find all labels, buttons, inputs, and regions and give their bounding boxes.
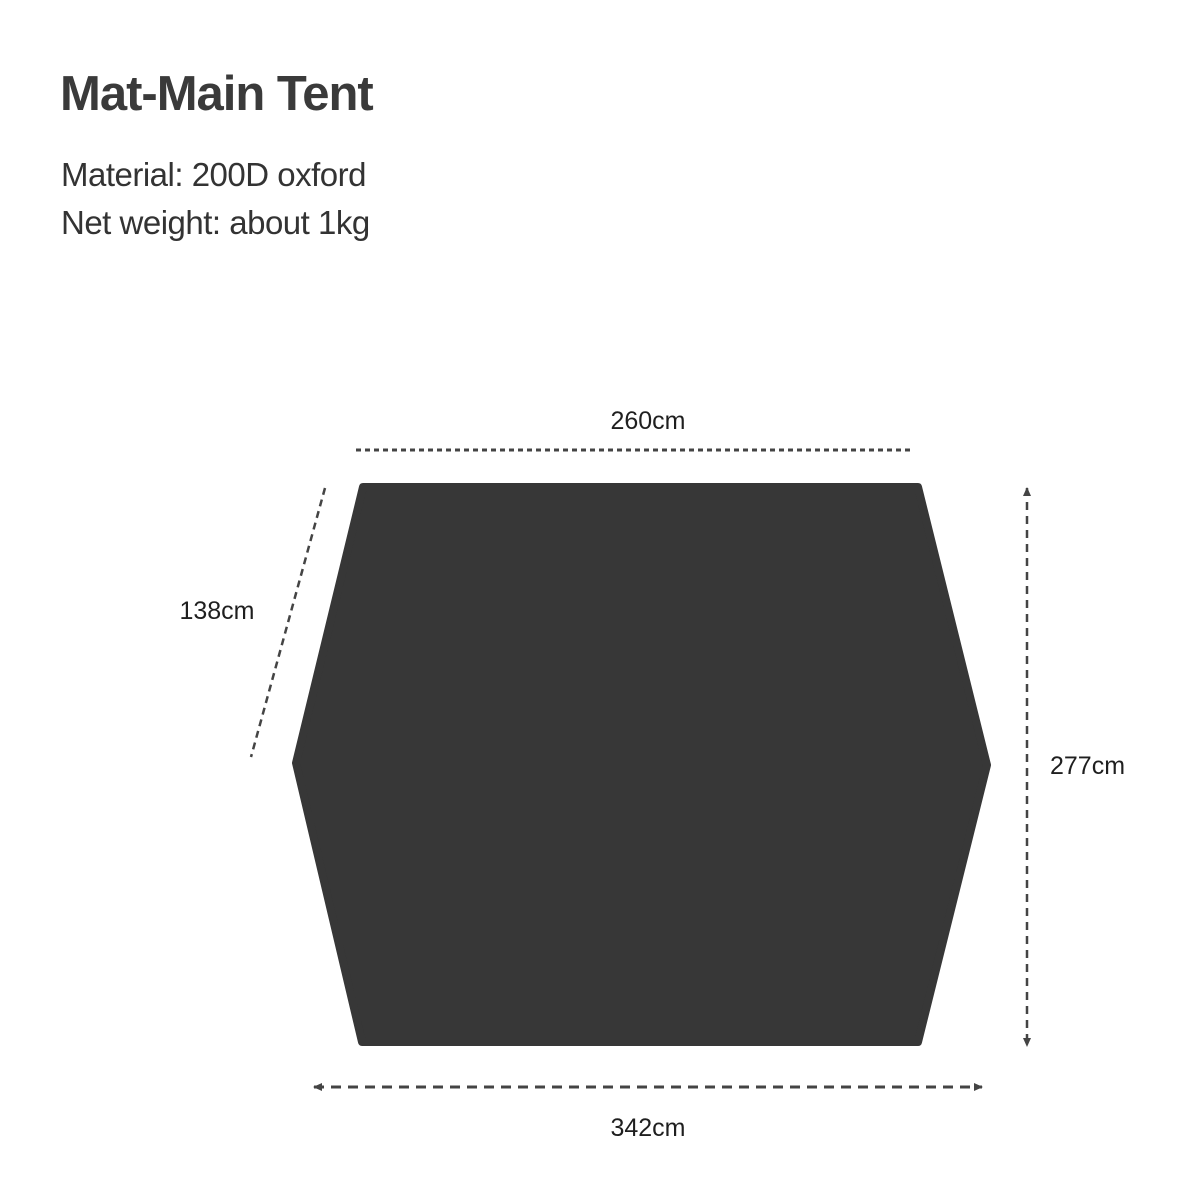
mat-shape bbox=[296, 487, 987, 1042]
dim-label-left-slant: 138cm bbox=[179, 597, 254, 625]
dim-label-top-width: 260cm bbox=[610, 407, 685, 435]
product-spec-canvas: Mat-Main Tent Material: 200D oxford Net … bbox=[0, 0, 1200, 1200]
mat-dimension-diagram: 260cm 138cm 277cm 342cm bbox=[0, 0, 1200, 1200]
dim-label-bottom-width: 342cm bbox=[610, 1114, 685, 1142]
dim-label-right-height: 277cm bbox=[1050, 752, 1125, 780]
